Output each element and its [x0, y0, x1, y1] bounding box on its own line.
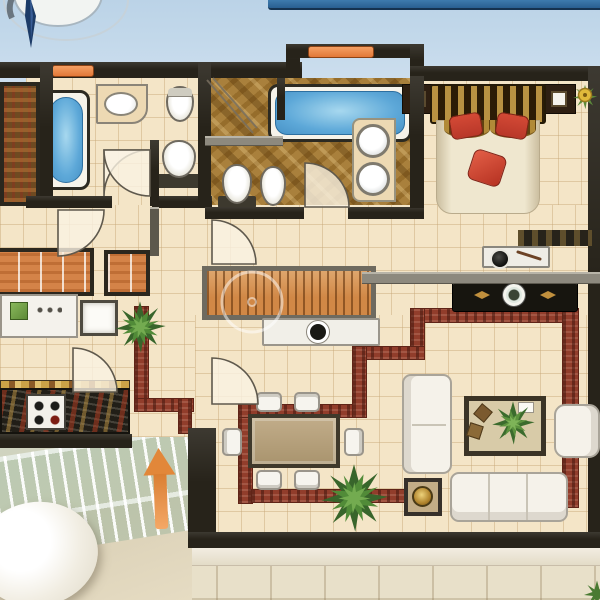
hall-wardrobe	[202, 266, 376, 320]
wall-kitchen-bottom	[0, 434, 132, 448]
window-marker-1	[52, 65, 94, 77]
wall-toilet-partition	[150, 140, 159, 206]
console-speaker	[503, 284, 525, 306]
side-table-bowl	[412, 486, 433, 507]
desk-stool	[490, 249, 510, 269]
floor-plan-canvas	[0, 0, 600, 600]
window-marker-2	[308, 46, 374, 58]
rug-tray	[518, 402, 534, 413]
shower-box	[80, 300, 118, 336]
red-partition-dining-bottom	[251, 489, 415, 503]
nightstand-right	[542, 84, 576, 114]
nightstand-frame-2	[551, 91, 567, 107]
dining-chair-bottom-1	[256, 470, 282, 490]
wall-bedroom-living	[362, 272, 600, 284]
bedroom-dresser	[518, 230, 592, 246]
single-bed	[0, 248, 94, 296]
stove	[26, 394, 66, 430]
dining-table	[248, 414, 340, 468]
round-basin-1	[356, 124, 390, 158]
wall-masterbath-bottom-a	[205, 207, 304, 219]
shower-partition	[277, 78, 285, 120]
wall-bath-bedroom	[410, 76, 424, 208]
round-basin-2	[356, 162, 390, 196]
dining-chair-left	[222, 428, 242, 456]
entrance-arrow	[137, 447, 184, 534]
washbasin	[104, 92, 138, 116]
vanity-basin	[307, 321, 329, 343]
wall-bottom	[188, 532, 600, 548]
dining-chair-right	[344, 428, 364, 456]
wall-top-bedroom	[410, 66, 600, 81]
toilet-tank	[168, 88, 192, 97]
arrow-shaft	[153, 474, 168, 529]
bed-headboard	[430, 84, 546, 124]
wall-bathroom-bottom-a	[26, 196, 112, 208]
dining-chair-top-1	[256, 392, 282, 412]
terrace-walkway	[188, 548, 600, 566]
kitchen-sink-unit	[10, 302, 28, 320]
wall-dining-left	[188, 428, 216, 548]
dining-chair-bottom-2	[294, 470, 320, 490]
kitchen-knobs	[36, 304, 62, 316]
wall-bathroom-left	[40, 62, 53, 208]
masterbath-partition	[205, 136, 283, 146]
top-banner-bar	[268, 0, 600, 10]
left-cabinet	[0, 82, 40, 206]
wall-between-baths	[198, 62, 211, 208]
loveseat	[402, 374, 452, 474]
wall-corridor-partition	[150, 207, 159, 256]
wall-right	[588, 66, 600, 548]
red-partition-hall-v	[352, 346, 367, 418]
dining-chair-top-2	[294, 392, 320, 412]
compass-rose-icon	[0, 0, 150, 62]
wall-masterbath-bottom-b	[348, 207, 424, 219]
loveseat-cushion-divider	[412, 424, 446, 426]
arrow-head-icon	[143, 447, 176, 475]
red-partition-kitchen	[134, 306, 149, 408]
bathtub-water	[49, 97, 83, 183]
single-bed-2	[104, 250, 150, 296]
three-seat-sofa	[450, 472, 568, 522]
armchair	[554, 404, 600, 458]
